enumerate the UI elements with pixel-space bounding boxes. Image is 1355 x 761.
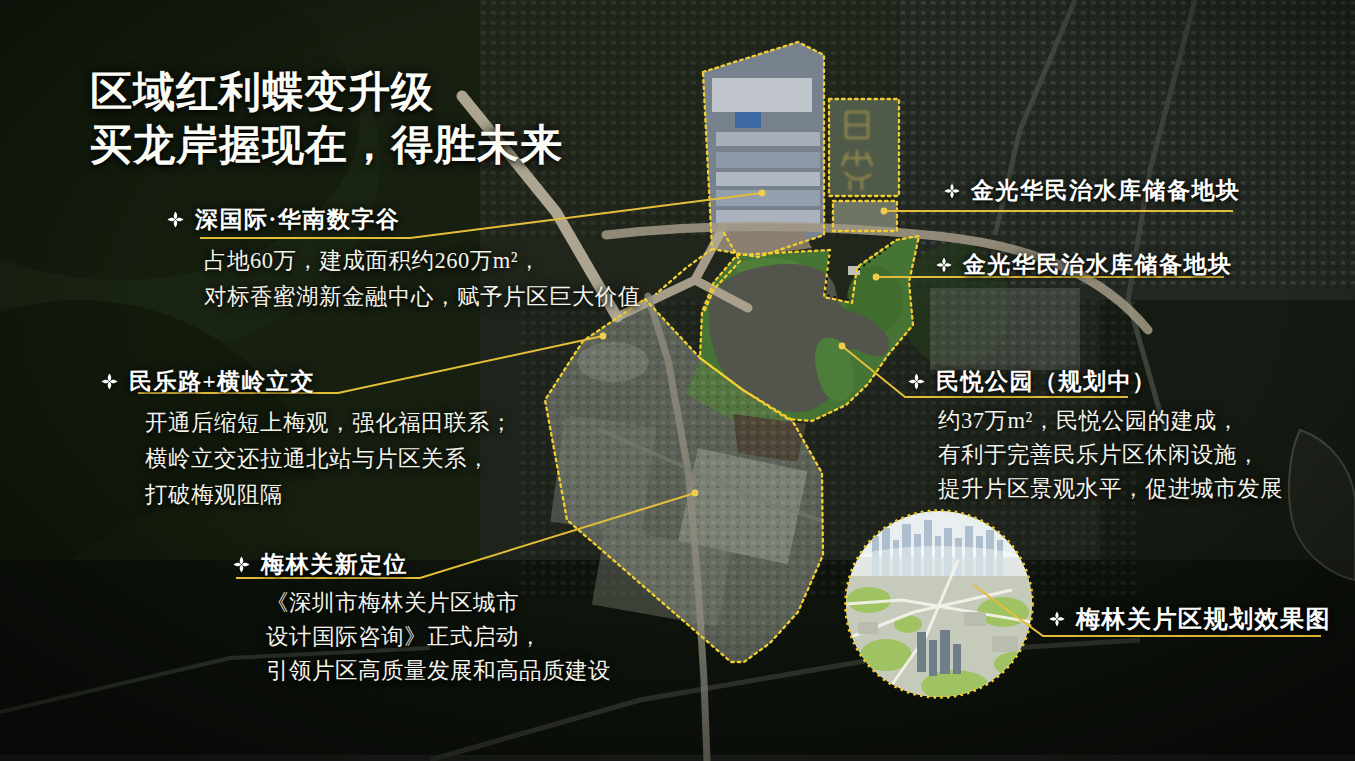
four-petal-flower-icon — [936, 257, 952, 273]
annotation-title: 深国际·华南数字谷 — [195, 204, 400, 235]
annotation-body-line: 对标香蜜湖新金融中心，赋予片区巨大价值 — [204, 279, 641, 315]
annotation-title: 金光华民治水库储备地块 — [963, 249, 1233, 280]
annotation-body-line: 打破梅观阻隔 — [145, 477, 513, 513]
annotation-reserve-plot-1: 金光华民治水库储备地块 — [944, 175, 1241, 206]
annotation-render-caption: 梅林关片区规划效果图 — [1049, 603, 1331, 635]
annotation-body-line: 横岭立交还拉通北站与片区关系， — [145, 441, 513, 477]
annotation-minyue-park: 民悦公园（规划中） 约37万m²，民悦公园的建成， 有利于完善民乐片区休闲设施，… — [908, 366, 1283, 506]
page-title: 区域红利蝶变升级 买龙岸握现在，得胜未来 — [90, 66, 563, 172]
four-petal-flower-icon — [101, 373, 118, 390]
four-petal-flower-icon — [233, 556, 250, 573]
annotation-body-line: 设计国际咨询》正式启动， — [266, 620, 611, 654]
annotation-body-line: 提升片区景观水平，促进城市发展 — [938, 472, 1283, 506]
annotation-title: 梅林关片区规划效果图 — [1076, 603, 1331, 635]
four-petal-flower-icon — [908, 373, 925, 390]
annotation-body-line: 约37万m²，民悦公园的建成， — [938, 404, 1283, 438]
annotation-title: 金光华民治水库储备地块 — [971, 175, 1241, 206]
title-line-1: 区域红利蝶变升级 — [90, 66, 563, 119]
four-petal-flower-icon — [944, 183, 960, 199]
title-line-2: 买龙岸握现在，得胜未来 — [90, 119, 563, 172]
annotation-body-line: 占地60万，建成面积约260万m²， — [204, 243, 641, 279]
slide-root: 区域红利蝶变升级 买龙岸握现在，得胜未来 深国际·华南数字谷 占地60万，建成面… — [0, 0, 1355, 761]
annotation-minle-interchange: 民乐路+横岭立交 开通后缩短上梅观，强化福田联系； 横岭立交还拉通北站与片区关系… — [101, 366, 513, 513]
annotation-meilinguan: 梅林关新定位 《深圳市梅林关片区城市 设计国际咨询》正式启动， 引领片区高质量发… — [233, 549, 611, 688]
annotation-body-line: 《深圳市梅林关片区城市 — [266, 586, 611, 620]
annotation-title: 梅林关新定位 — [261, 549, 408, 580]
four-petal-flower-icon — [167, 211, 184, 228]
annotation-body-line: 有利于完善民乐片区休闲设施， — [938, 438, 1283, 472]
annotation-digital-valley: 深国际·华南数字谷 占地60万，建成面积约260万m²， 对标香蜜湖新金融中心，… — [167, 204, 641, 315]
annotation-body-line: 开通后缩短上梅观，强化福田联系； — [145, 405, 513, 441]
four-petal-flower-icon — [1049, 611, 1065, 627]
annotation-reserve-plot-2: 金光华民治水库储备地块 — [936, 249, 1233, 280]
annotation-body-line: 引领片区高质量发展和高品质建设 — [266, 654, 611, 688]
annotation-title: 民悦公园（规划中） — [936, 366, 1157, 397]
annotation-title: 民乐路+横岭立交 — [129, 366, 315, 397]
